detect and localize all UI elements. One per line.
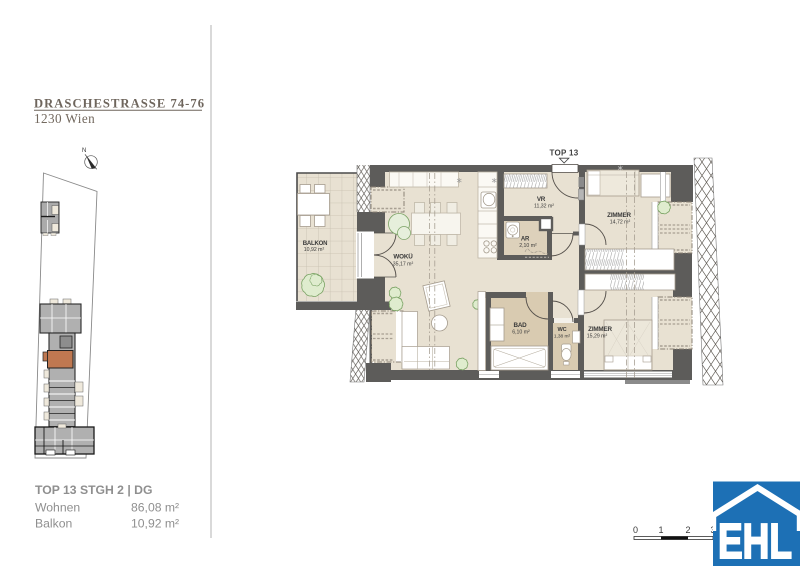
svg-text:WOKÜ: WOKÜ bbox=[393, 252, 413, 261]
svg-text:AR: AR bbox=[521, 237, 530, 243]
svg-text:2,10 m²: 2,10 m² bbox=[519, 243, 537, 249]
svg-text:EHL: EHL bbox=[718, 515, 792, 566]
svg-text:0: 0 bbox=[633, 525, 638, 535]
svg-text:Wohnen: Wohnen bbox=[35, 501, 80, 515]
svg-text:2: 2 bbox=[686, 525, 691, 535]
svg-text:15,29 m²: 15,29 m² bbox=[587, 334, 608, 340]
svg-text:ZIMMER: ZIMMER bbox=[607, 212, 631, 219]
svg-text:ZIMMER: ZIMMER bbox=[588, 326, 612, 333]
svg-text:TOP 13 STGH 2 | DG: TOP 13 STGH 2 | DG bbox=[35, 483, 152, 497]
svg-text:86,08 m²: 86,08 m² bbox=[131, 501, 179, 515]
svg-text:10,92 m²: 10,92 m² bbox=[131, 517, 179, 531]
svg-text:VR: VR bbox=[537, 196, 546, 203]
svg-text:35,17 m²: 35,17 m² bbox=[393, 262, 414, 268]
svg-text:10,92 m²: 10,92 m² bbox=[304, 247, 325, 253]
svg-text:BAD: BAD bbox=[513, 322, 527, 329]
svg-text:1230 Wien: 1230 Wien bbox=[34, 111, 95, 126]
svg-text:WC: WC bbox=[558, 327, 567, 333]
svg-text:TOP 13: TOP 13 bbox=[549, 149, 578, 158]
svg-text:11,32 m²: 11,32 m² bbox=[534, 204, 554, 210]
svg-text:1,38 m²: 1,38 m² bbox=[554, 334, 571, 340]
svg-text:DRASCHESTRASSE 74-76: DRASCHESTRASSE 74-76 bbox=[34, 97, 205, 111]
svg-text:1: 1 bbox=[659, 525, 664, 535]
svg-text:Balkon: Balkon bbox=[35, 517, 72, 531]
svg-text:6,10 m²: 6,10 m² bbox=[512, 330, 530, 336]
svg-text:N: N bbox=[82, 148, 86, 154]
svg-text:14,72 m²: 14,72 m² bbox=[610, 220, 631, 226]
